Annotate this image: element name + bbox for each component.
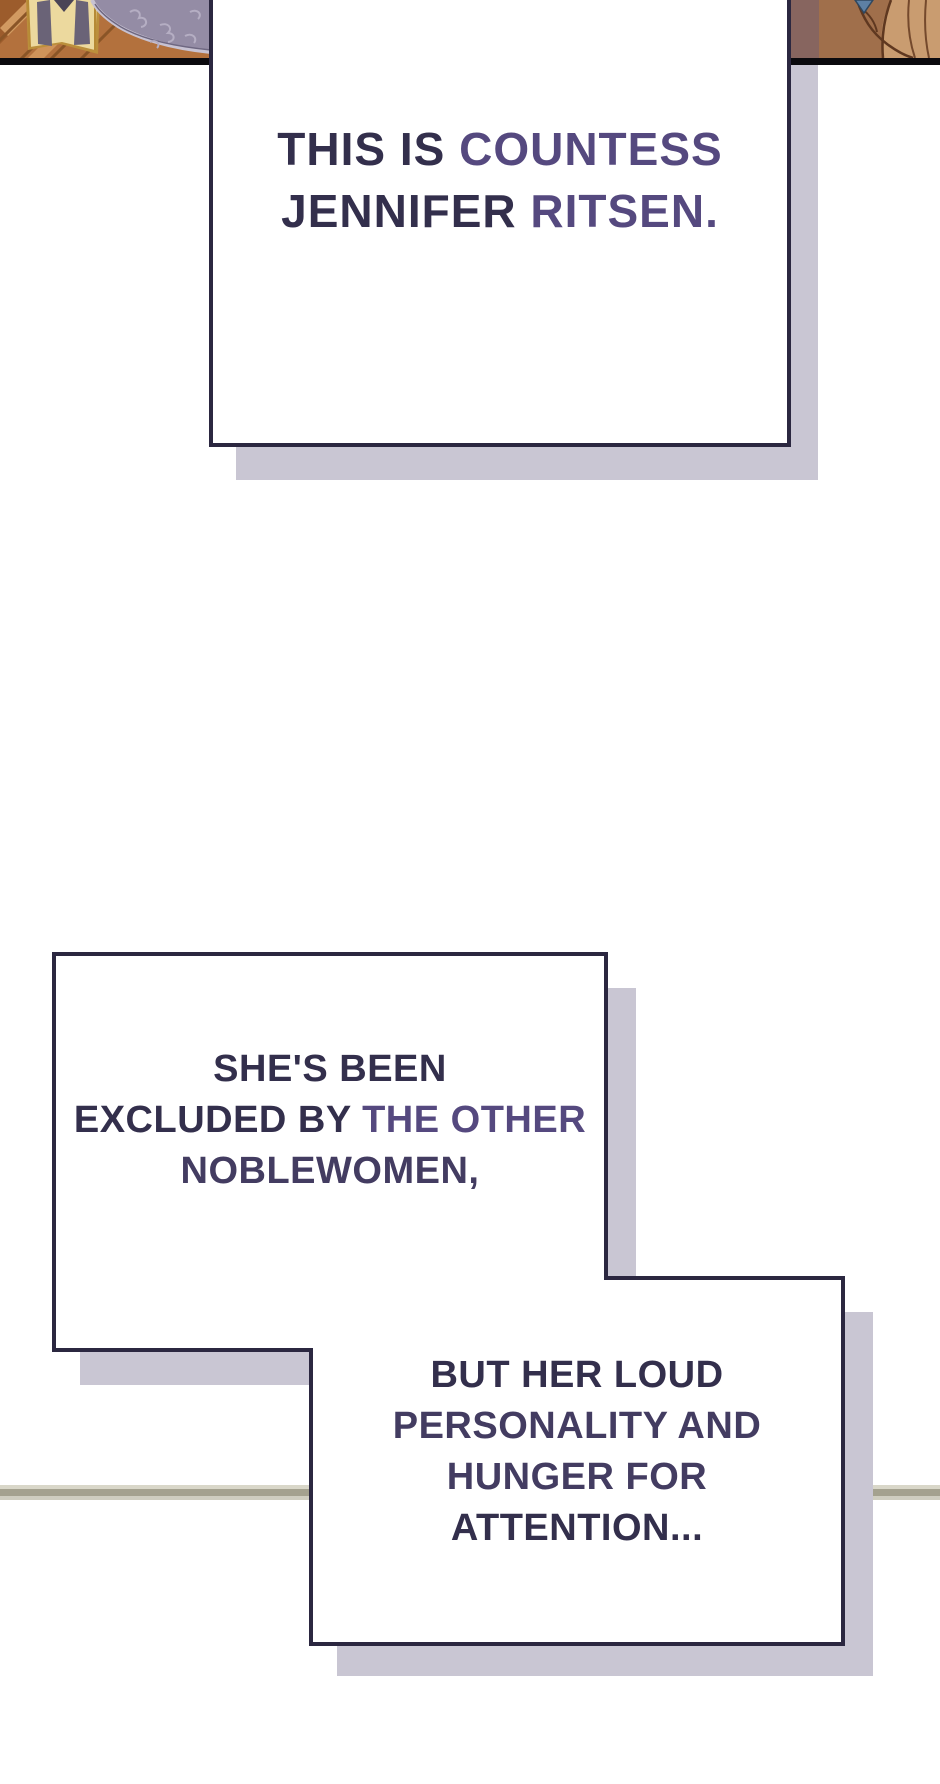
narration-segment: RITSEN.	[530, 185, 718, 237]
narration-segment: BUT HER LOUD	[430, 1354, 723, 1396]
wood-banner-damask-art	[0, 0, 211, 58]
narration-segment: COUNTESS	[459, 123, 723, 175]
narration-line: SHE'S BEEN	[56, 1044, 604, 1095]
narration-box-2-border-bottom	[52, 1348, 313, 1352]
narration-box-2-border-right	[604, 952, 608, 1280]
narration-line: THIS IS COUNTESS	[213, 118, 787, 180]
narration-text-countess-intro: THIS IS COUNTESSJENNIFER RITSEN.	[213, 118, 787, 242]
figure-art	[791, 0, 940, 58]
narration-segment: NOBLEWOMEN,	[181, 1150, 480, 1192]
narration-line: ATTENTION...	[313, 1503, 841, 1554]
narration-segment: HUNGER FOR	[447, 1456, 707, 1498]
narration-line: NOBLEWOMEN,	[56, 1146, 604, 1197]
narration-line: HUNGER FOR	[313, 1452, 841, 1503]
narration-line: PERSONALITY AND	[313, 1401, 841, 1452]
narration-line: EXCLUDED BY THE OTHER	[56, 1095, 604, 1146]
comic-page: THIS IS COUNTESSJENNIFER RITSEN. SHE'S B…	[0, 0, 940, 1784]
narration-box-2-border-top	[52, 952, 608, 956]
narration-box-3-border-right	[841, 1276, 845, 1646]
panel-art-figure	[791, 0, 940, 58]
narration-segment: JENNIFER	[281, 185, 530, 237]
narration-text-personality: BUT HER LOUDPERSONALITY ANDHUNGER FORATT…	[313, 1350, 841, 1554]
narration-text-excluded: SHE'S BEENEXCLUDED BY THE OTHERNOBLEWOME…	[56, 1044, 604, 1197]
narration-box-3-border-bottom	[309, 1642, 845, 1646]
narration-segment: EXCLUDED BY	[74, 1099, 362, 1141]
narration-segment: THIS IS	[277, 123, 459, 175]
narration-line: JENNIFER RITSEN.	[213, 180, 787, 242]
narration-segment: THE OTHER	[362, 1099, 586, 1141]
narration-box-3-border-top	[604, 1276, 845, 1280]
narration-segment: SHE'S BEEN	[213, 1048, 447, 1090]
narration-segment: PERSONALITY AND	[393, 1405, 762, 1447]
panel-art-floor-banner-damask	[0, 0, 211, 58]
narration-segment: ATTENTION...	[451, 1507, 703, 1549]
narration-line: BUT HER LOUD	[313, 1350, 841, 1401]
